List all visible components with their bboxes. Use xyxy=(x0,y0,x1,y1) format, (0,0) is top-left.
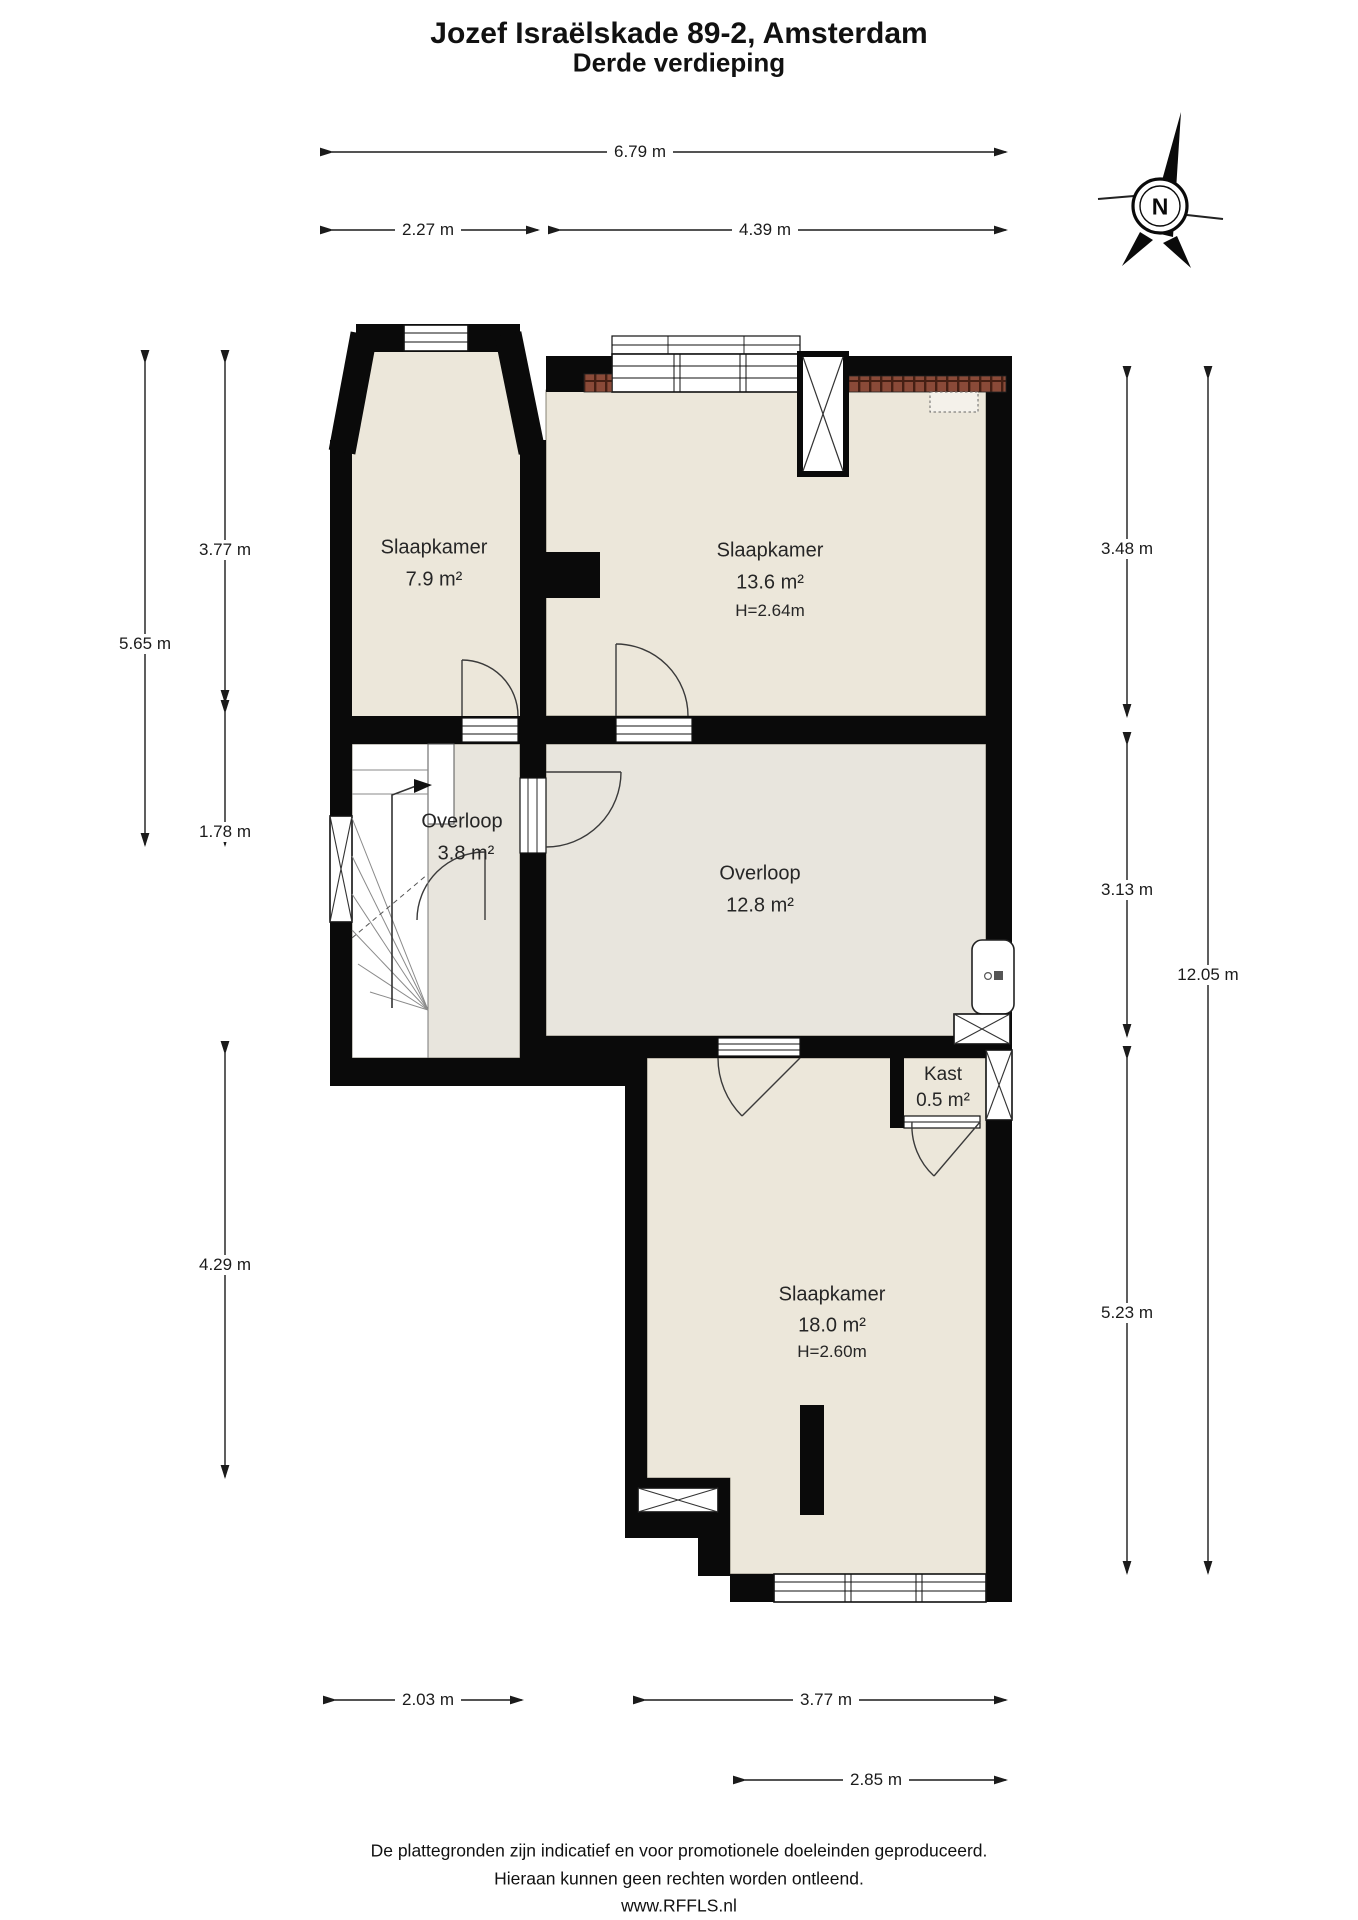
room-label-slaapkamer-rechts-height: H=2.64m xyxy=(735,601,804,621)
floorplan-drawing xyxy=(0,0,1358,1920)
room-label-kast-name: Kast xyxy=(924,1064,962,1086)
dim-right-middle: 3.13 m xyxy=(1094,880,1160,900)
compass-north-label: N xyxy=(1152,194,1169,221)
room-label-overloop-groot-area: 12.8 m² xyxy=(726,895,794,918)
room-label-slaapkamer-rechts-area: 13.6 m² xyxy=(736,572,804,595)
dim-left-upper: 3.77 m xyxy=(192,540,258,560)
dim-right-lower: 5.23 m xyxy=(1094,1303,1160,1323)
floorplan-page: Jozef Israëlskade 89-2, Amsterdam Derde … xyxy=(0,0,1358,1920)
room-label-slaapkamer-onder-area: 18.0 m² xyxy=(798,1315,866,1338)
dim-right-upper: 3.48 m xyxy=(1094,539,1160,559)
room-label-overloop-klein-area: 3.8 m² xyxy=(438,843,495,866)
floor-fills xyxy=(344,346,986,1574)
footer-disclaimer-line1: De plattegronden zijn indicatief en voor… xyxy=(371,1841,988,1862)
compass-icon xyxy=(1098,112,1223,268)
dim-top-total: 6.79 m xyxy=(607,142,673,162)
room-label-slaapkamer-links-area: 7.9 m² xyxy=(406,569,463,592)
room-label-slaapkamer-links-name: Slaapkamer xyxy=(381,537,488,560)
footer-website: www.RFFLS.nl xyxy=(621,1896,737,1917)
dim-left-bottom: 4.29 m xyxy=(192,1255,258,1275)
room-label-overloop-klein-name: Overloop xyxy=(421,811,502,834)
dim-left-lower: 1.78 m xyxy=(192,822,258,842)
page-subtitle: Derde verdieping xyxy=(573,48,785,79)
room-label-slaapkamer-onder-name: Slaapkamer xyxy=(779,1284,886,1307)
room-label-kast-area: 0.5 m² xyxy=(916,1090,970,1112)
dim-left-total: 5.65 m xyxy=(112,634,178,654)
room-label-slaapkamer-onder-height: H=2.60m xyxy=(797,1342,866,1362)
room-label-slaapkamer-rechts-name: Slaapkamer xyxy=(717,540,824,563)
page-title: Jozef Israëlskade 89-2, Amsterdam xyxy=(430,17,927,51)
footer-disclaimer-line2: Hieraan kunnen geen rechten worden ontle… xyxy=(494,1869,864,1890)
dim-bottom-middle: 3.77 m xyxy=(793,1690,859,1710)
dim-bottom-window: 2.85 m xyxy=(843,1770,909,1790)
dim-right-total: 12.05 m xyxy=(1170,965,1245,985)
dim-top-left: 2.27 m xyxy=(395,220,461,240)
dim-bottom-left: 2.03 m xyxy=(395,1690,461,1710)
room-label-overloop-groot-name: Overloop xyxy=(719,863,800,886)
dim-top-right: 4.39 m xyxy=(732,220,798,240)
